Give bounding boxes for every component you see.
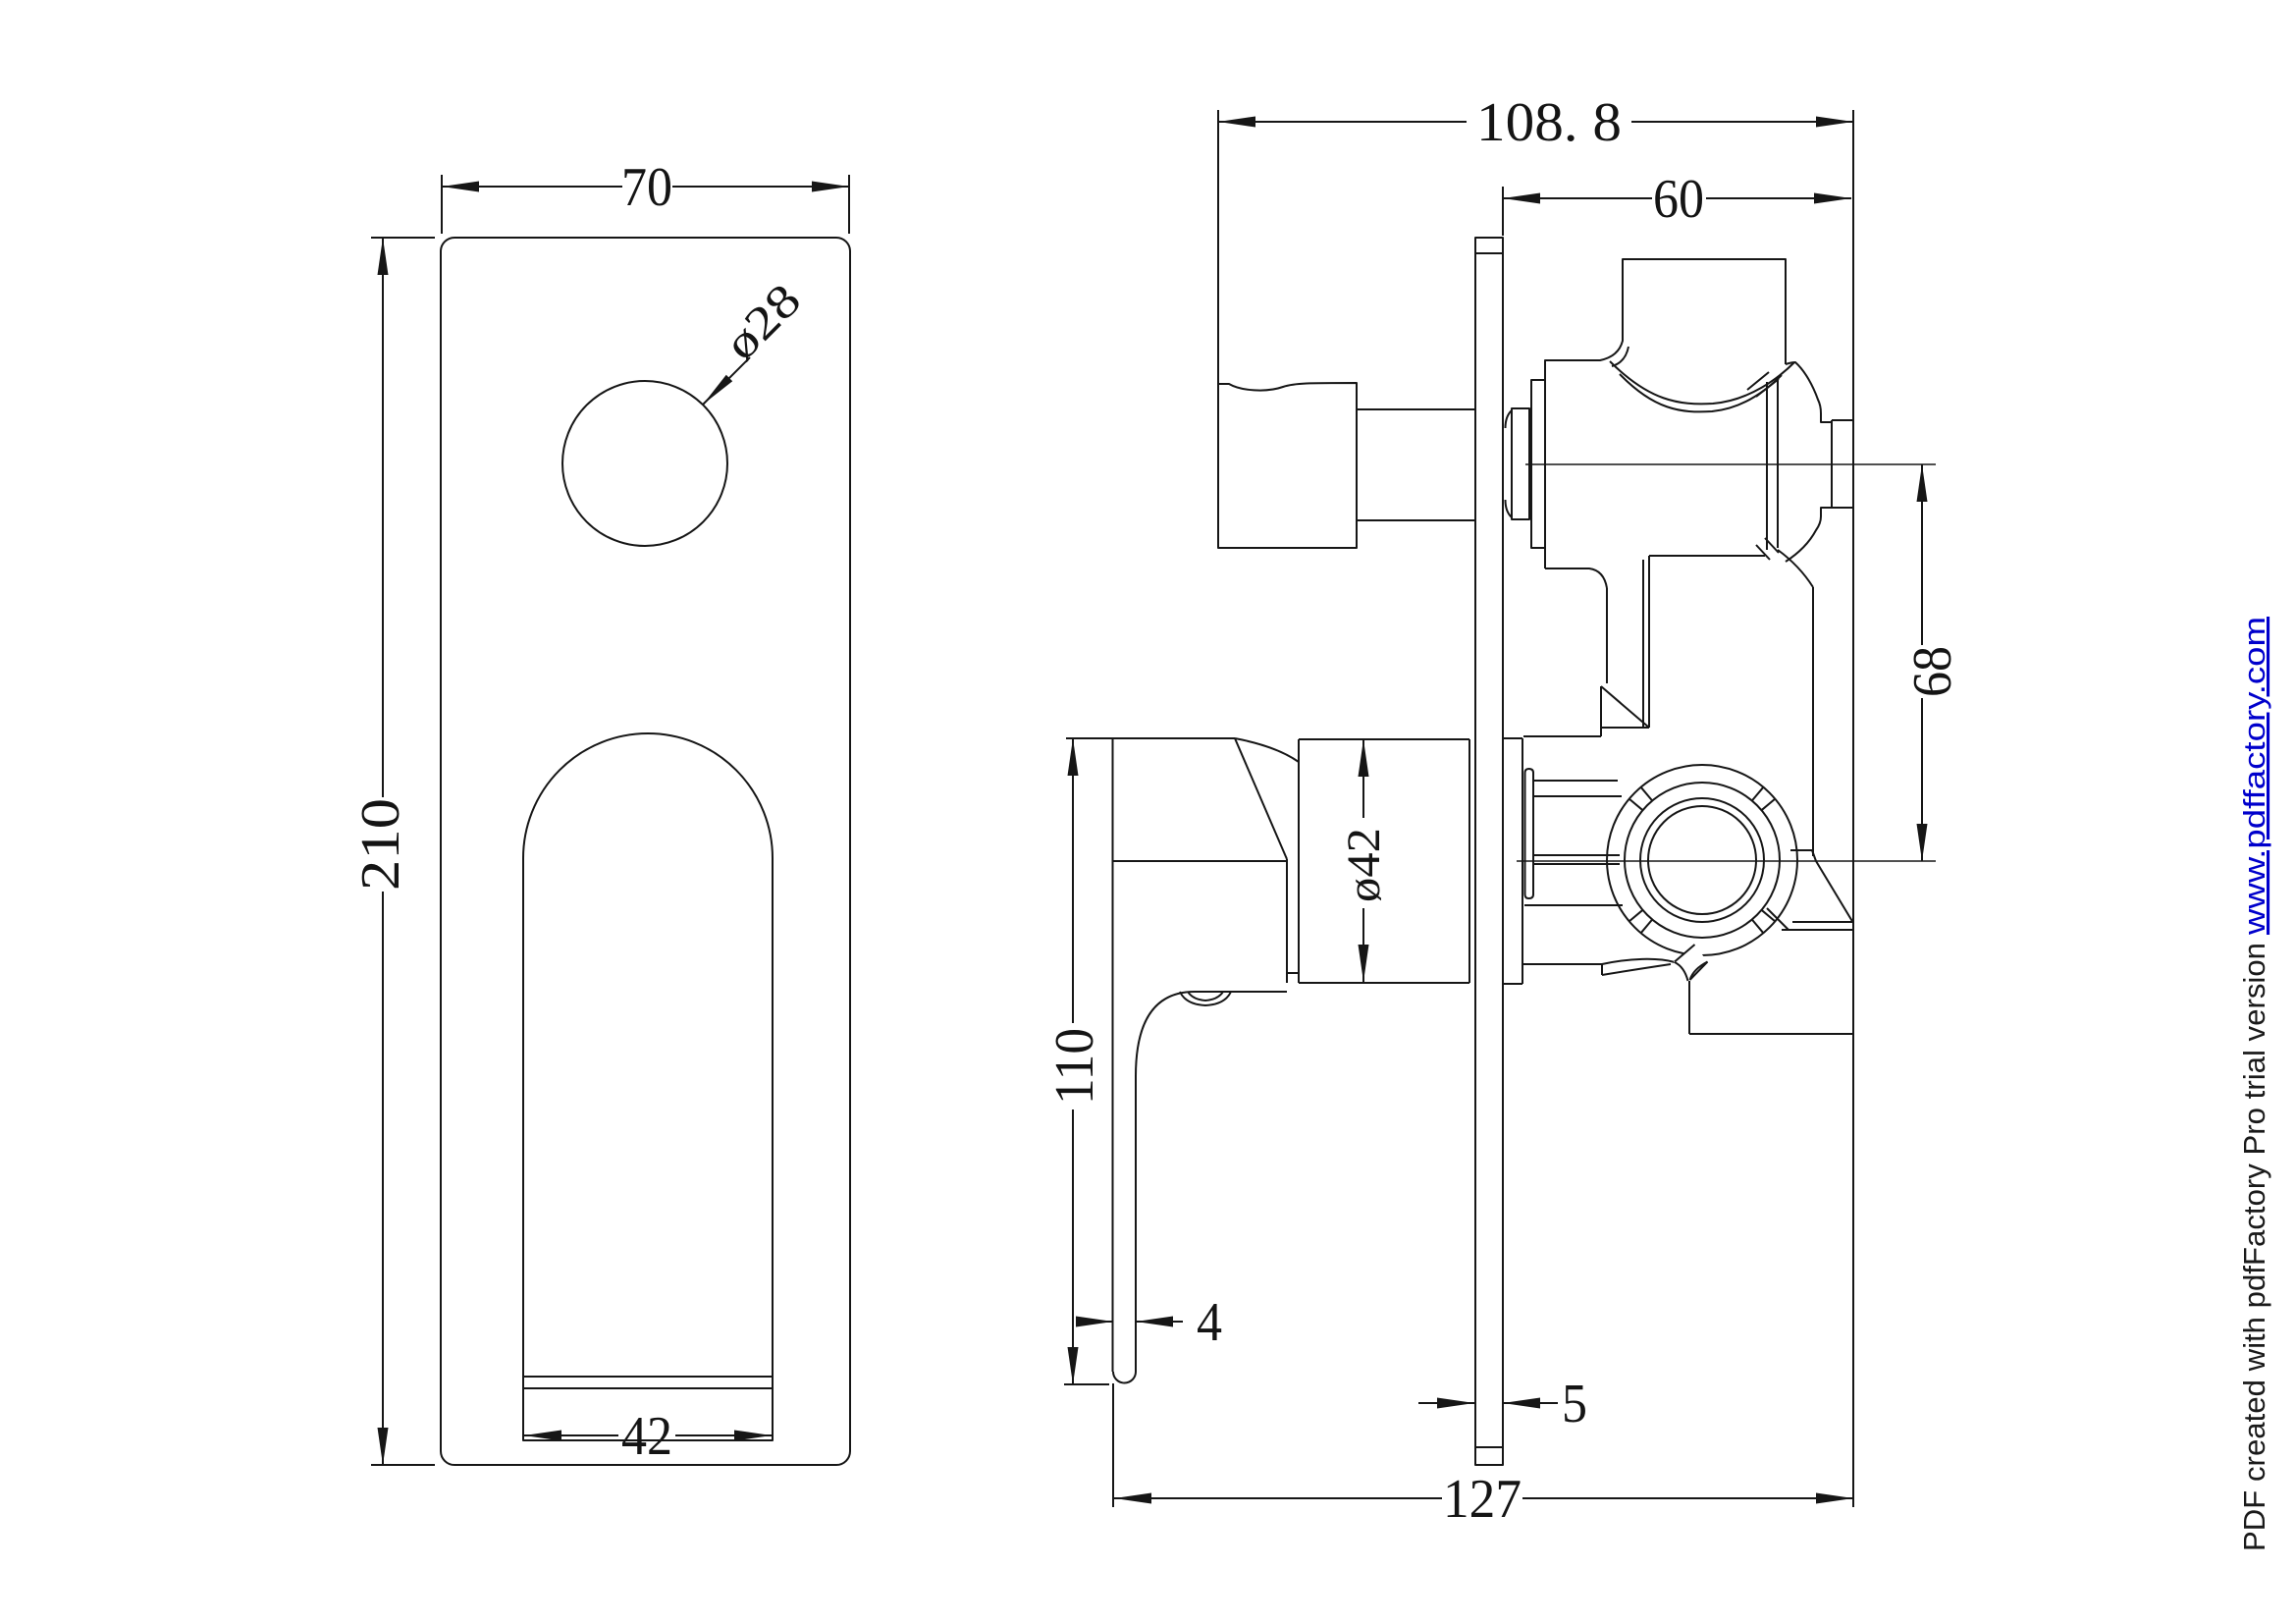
svg-text:ø42: ø42 bbox=[1338, 828, 1390, 902]
svg-text:108. 8: 108. 8 bbox=[1476, 92, 1622, 153]
svg-text:70: 70 bbox=[621, 157, 672, 218]
svg-text:68: 68 bbox=[1902, 646, 1963, 697]
svg-text:ø28: ø28 bbox=[715, 274, 811, 370]
svg-text:60: 60 bbox=[1653, 169, 1704, 230]
svg-text:42: 42 bbox=[621, 1406, 672, 1467]
svg-text:127: 127 bbox=[1443, 1469, 1522, 1530]
svg-text:PDF created with pdfFactory Pr: PDF created with pdfFactory Pro trial ve… bbox=[2237, 943, 2271, 1551]
svg-text:5: 5 bbox=[1562, 1374, 1587, 1434]
svg-text:210: 210 bbox=[350, 798, 411, 891]
svg-text:110: 110 bbox=[1044, 1028, 1105, 1105]
svg-text:www.pdffactory.com: www.pdffactory.com bbox=[2237, 617, 2271, 936]
svg-text:4: 4 bbox=[1197, 1292, 1222, 1353]
